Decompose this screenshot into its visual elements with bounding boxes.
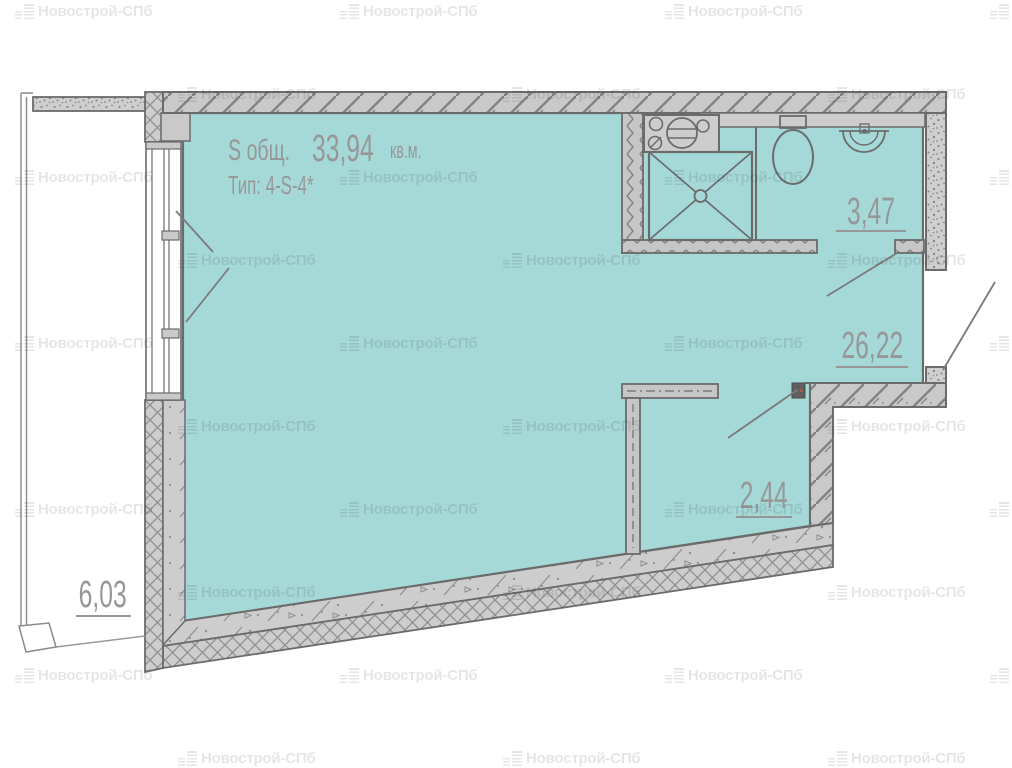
top-wall <box>163 92 946 113</box>
balcony-top-wall <box>33 97 145 111</box>
bathroom-area-label: 3,47 <box>847 190 895 233</box>
balcony-area-label: 6,03 <box>79 573 127 616</box>
floor-plan-drawing: S общ. 33,94 кв.м. Тип: 4-S-4* 3,47 26,2… <box>0 0 1012 768</box>
door-frame-block <box>792 383 805 398</box>
window-handle-bottom <box>162 329 179 338</box>
living-area-label: 26,22 <box>841 324 903 367</box>
hall-area-label: 2,44 <box>740 474 788 517</box>
duct-band <box>700 113 925 127</box>
right-exterior-wall <box>926 113 946 383</box>
total-area-label: S общ. <box>228 134 290 167</box>
entrance-l-wall <box>805 383 946 526</box>
total-area-unit: кв.м. <box>390 138 422 163</box>
sink-counter-unit <box>644 115 719 152</box>
balcony-glazing <box>19 93 145 652</box>
entrance-door-swing <box>943 282 995 370</box>
unit-type-label: Тип: 4-S-4* <box>228 170 314 200</box>
window-handle-top <box>162 231 179 240</box>
total-area-value: 33,94 <box>312 127 374 170</box>
floor-plan-page: S общ. 33,94 кв.м. Тип: 4-S-4* 3,47 26,2… <box>0 0 1012 768</box>
